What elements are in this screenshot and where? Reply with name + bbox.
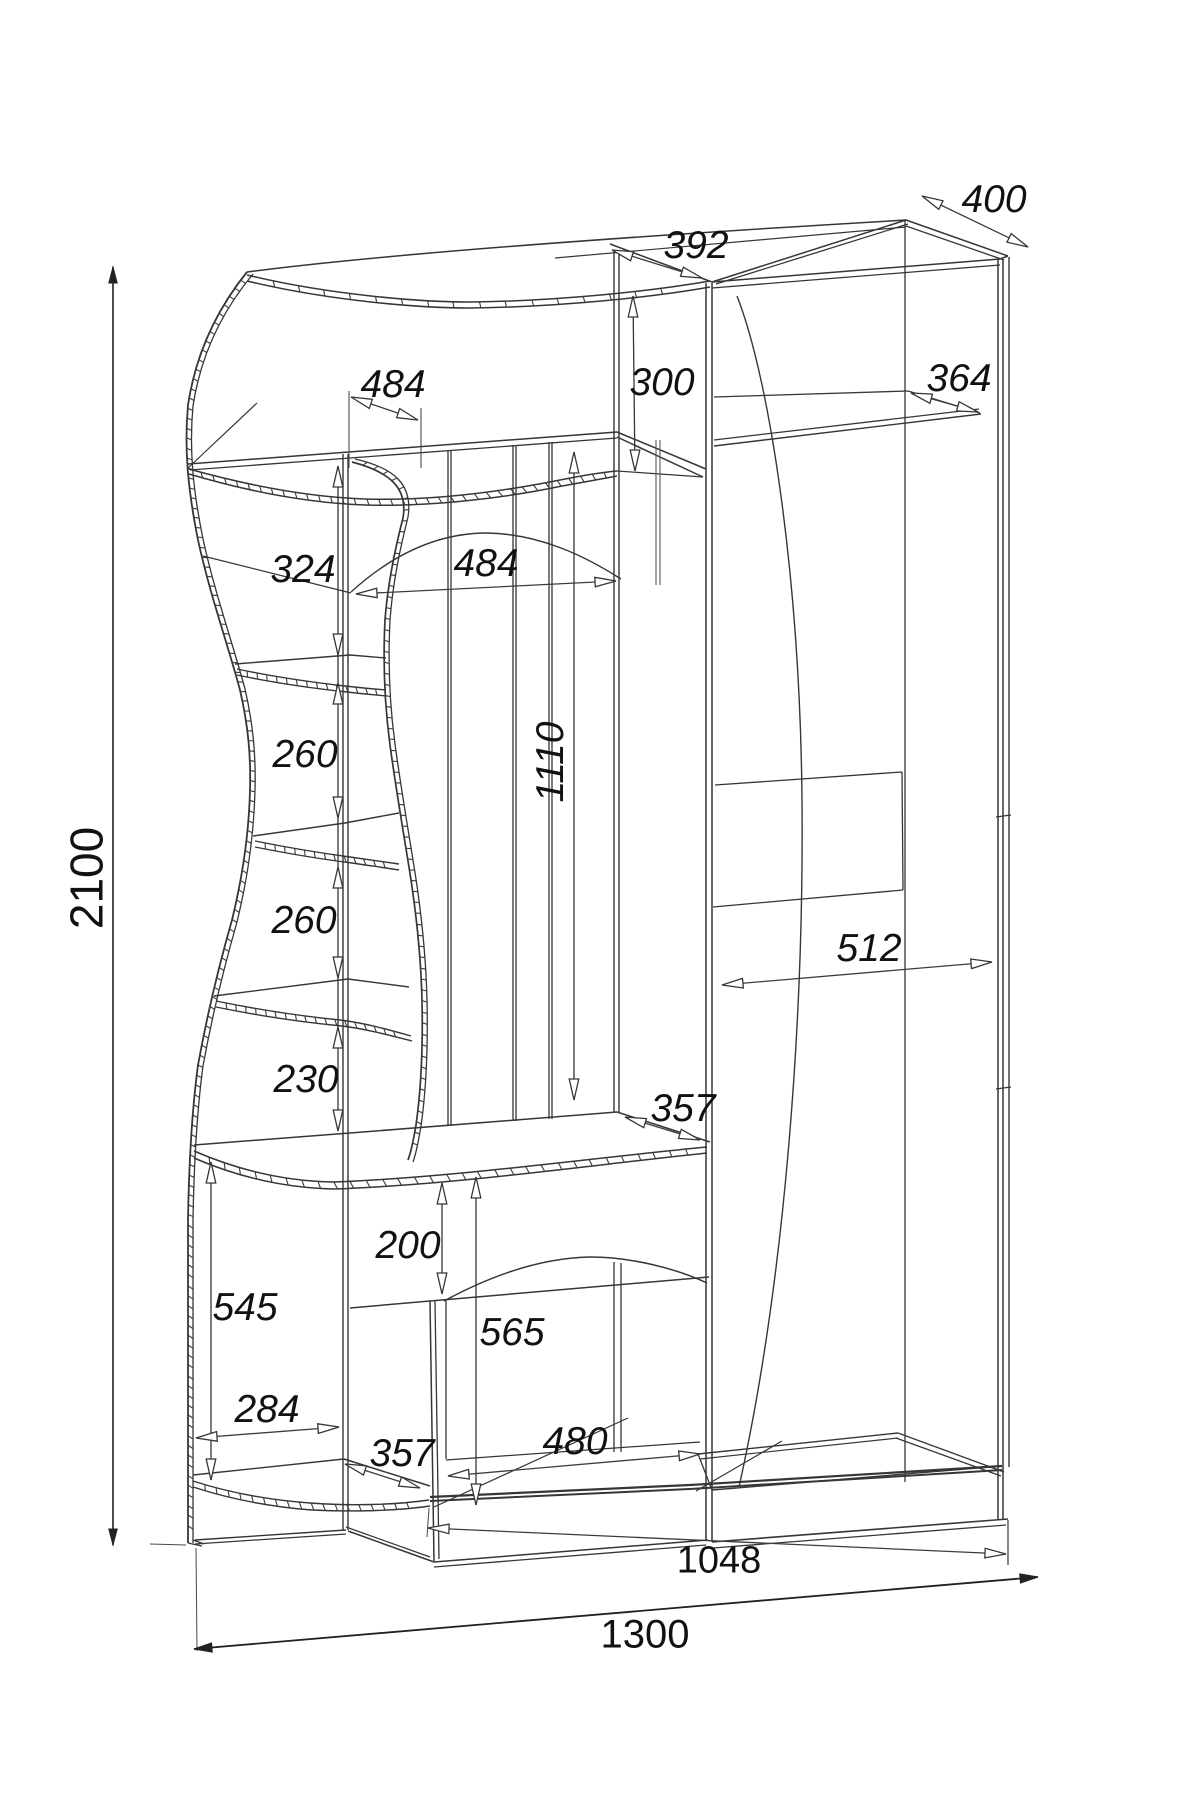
svg-text:200: 200 (374, 1224, 440, 1267)
svg-text:230: 230 (272, 1058, 338, 1101)
svg-text:484: 484 (360, 363, 425, 406)
svg-text:480: 480 (542, 1420, 607, 1463)
svg-text:545: 545 (212, 1286, 277, 1329)
svg-text:260: 260 (270, 899, 336, 942)
svg-text:484: 484 (453, 542, 518, 585)
svg-text:284: 284 (233, 1388, 299, 1431)
svg-text:260: 260 (271, 733, 337, 776)
svg-text:400: 400 (961, 178, 1026, 221)
svg-text:357: 357 (369, 1432, 435, 1475)
svg-text:392: 392 (663, 224, 728, 267)
svg-text:364: 364 (926, 357, 991, 400)
svg-text:512: 512 (836, 927, 901, 970)
svg-text:1110: 1110 (529, 721, 572, 802)
svg-text:357: 357 (650, 1087, 716, 1130)
svg-text:1300: 1300 (601, 1612, 690, 1656)
svg-text:2100: 2100 (61, 827, 113, 929)
svg-text:324: 324 (270, 548, 335, 591)
svg-text:565: 565 (479, 1311, 544, 1354)
svg-text:1048: 1048 (677, 1540, 762, 1582)
svg-text:300: 300 (629, 361, 694, 404)
